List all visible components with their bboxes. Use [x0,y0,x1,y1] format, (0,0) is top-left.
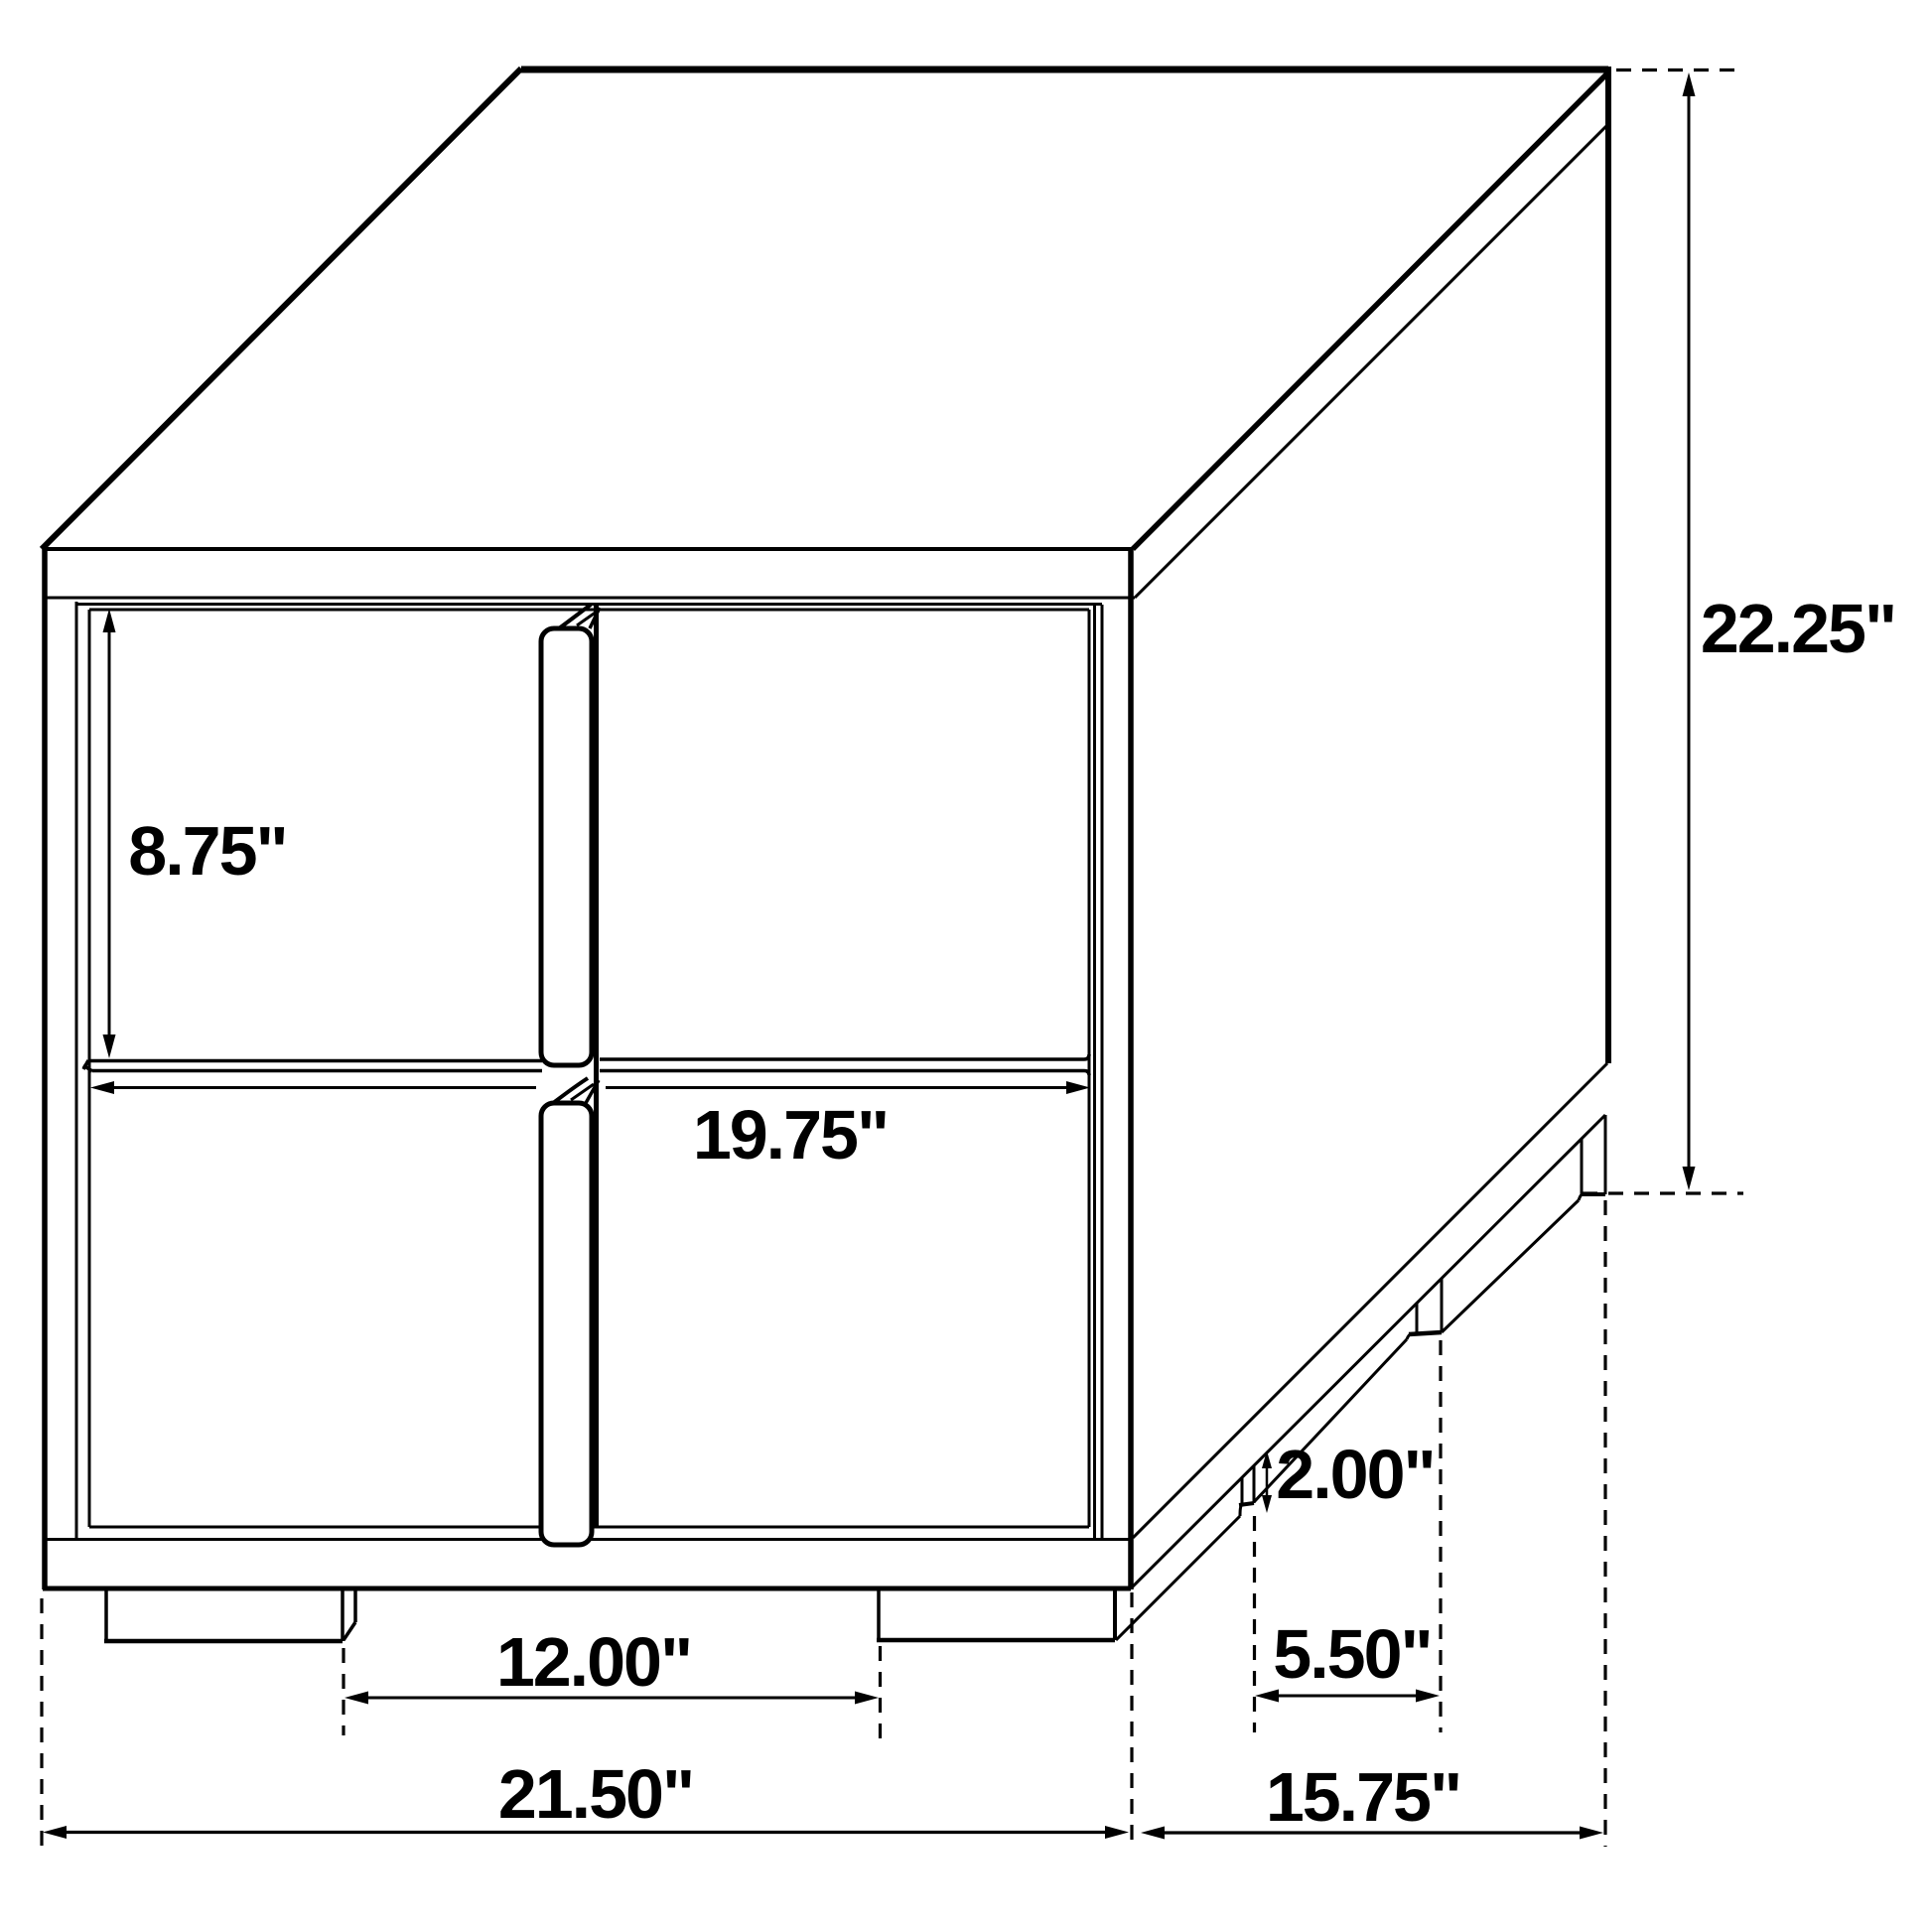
svg-text:5.50": 5.50" [1273,1615,1431,1693]
svg-text:8.75": 8.75" [128,812,286,890]
svg-text:22.25": 22.25" [1701,590,1895,667]
svg-text:19.75": 19.75" [693,1096,888,1173]
svg-text:2.00": 2.00" [1276,1436,1434,1513]
svg-text:12.00": 12.00" [496,1623,691,1701]
svg-text:15.75": 15.75" [1266,1758,1460,1836]
svg-text:21.50": 21.50" [498,1755,693,1833]
